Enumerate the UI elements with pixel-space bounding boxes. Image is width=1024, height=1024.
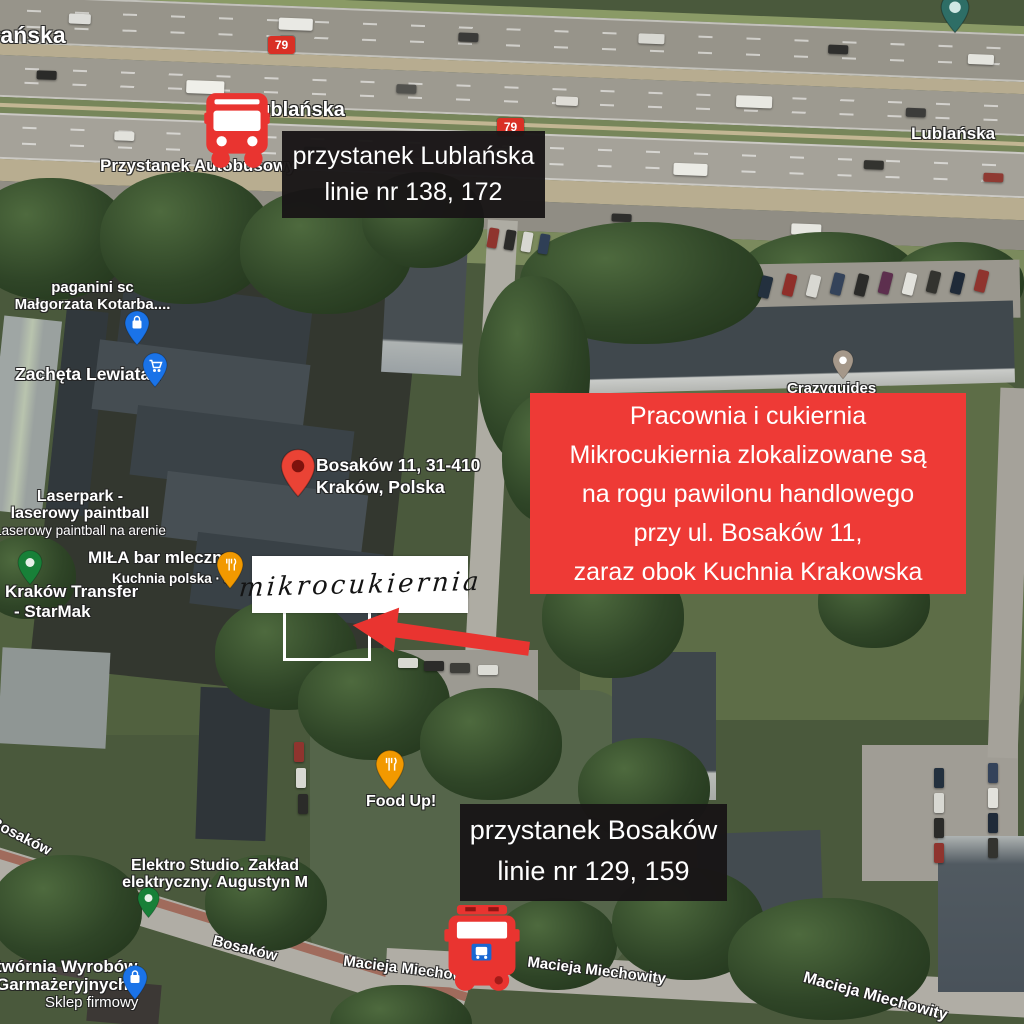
callout-line: linie nr 129, 159 [460, 851, 727, 892]
tree [420, 688, 562, 800]
callout-line: przystanek Bosaków [460, 810, 727, 851]
poi-label-line: twórnia Wyrobów [0, 958, 138, 976]
poi-label-line: laserowy paintball [0, 505, 174, 522]
transit-pin-icon[interactable] [940, 0, 970, 34]
street-label-lublanska-right: Lublańska [911, 124, 995, 144]
poi-label-zacheta: Zachęta Lewiatan [15, 364, 161, 385]
place-pin-icon[interactable] [280, 448, 316, 498]
generic-pin-icon[interactable] [137, 886, 160, 919]
poi-label-line: Garmażeryjnych [0, 976, 138, 994]
poi-label-line: Laserpark - [0, 488, 174, 505]
poi-label-line: Kraków, Polska [316, 476, 480, 498]
poi-label-paganini: paganini sc Małgorzata Kotarba.... [0, 279, 185, 313]
callout-line: zaraz obok Kuchnia Krakowska [530, 553, 966, 592]
satellite-map[interactable]: łańska Lublańska Lublańska 79 79 Przysta… [0, 0, 1024, 1024]
callout-line: linie nr 138, 172 [282, 174, 545, 210]
poi-label-line: - StarMak [14, 602, 138, 622]
poi-label-mila: MIŁA bar mleczny [88, 548, 232, 568]
poi-label-bosakow11: Bosaków 11, 31-410 Kraków, Polska [316, 454, 480, 498]
callout-line: przystanek Lublańska [282, 138, 545, 174]
shopping-pin-icon[interactable] [122, 964, 148, 1001]
building [0, 647, 110, 749]
poi-label-line: paganini sc [0, 279, 185, 296]
poi-label-wytwornia: twórnia Wyrobów Garmażeryjnych Sklep fir… [0, 958, 138, 1012]
info-callout-mikrocukiernia: Pracownia i cukiernia Mikrocukiernia zlo… [530, 393, 966, 594]
bus-icon [202, 86, 272, 172]
shopping-pin-icon[interactable] [124, 310, 150, 346]
bus-icon [444, 904, 520, 996]
poi-label-subtitle: Laserowy paintball na arenie [0, 522, 174, 539]
handwritten-text: mikrocukiernia [238, 566, 483, 602]
callout-line: na rogu pawilonu handlowego [530, 475, 966, 514]
poi-label-laserpark: Laserpark - laserowy paintball Laserowy … [0, 488, 174, 539]
building [195, 687, 270, 841]
supermarket-pin-icon[interactable] [142, 352, 168, 388]
callout-line: Pracownia i cukiernia [530, 397, 966, 436]
restaurant-pin-icon[interactable] [375, 748, 405, 792]
poi-label-food-up: Food Up! [366, 793, 436, 811]
callout-line: przy ul. Bosaków 11, [530, 514, 966, 553]
street-label-lublanska-topleft: łańska [0, 22, 66, 49]
poi-label-krakow-transfer: Kraków Transfer - StarMak [5, 582, 138, 622]
poi-label-line: Małgorzata Kotarba.... [0, 296, 185, 313]
route-shield-79: 79 [268, 36, 295, 54]
callout-line: Mikrocukiernia zlokalizowane są [530, 436, 966, 475]
generic-pin-icon[interactable] [832, 349, 854, 380]
poi-label-line: Bosaków 11, 31-410 [316, 454, 480, 476]
poi-label-line: Elektro Studio. Zakład [118, 857, 312, 874]
building [938, 836, 1024, 992]
bus-stop-callout-bosakow: przystanek Bosaków linie nr 129, 159 [460, 804, 727, 901]
bus-stop-callout-lublanska: przystanek Lublańska linie nr 138, 172 [282, 131, 545, 218]
generic-pin-icon[interactable] [17, 549, 43, 586]
